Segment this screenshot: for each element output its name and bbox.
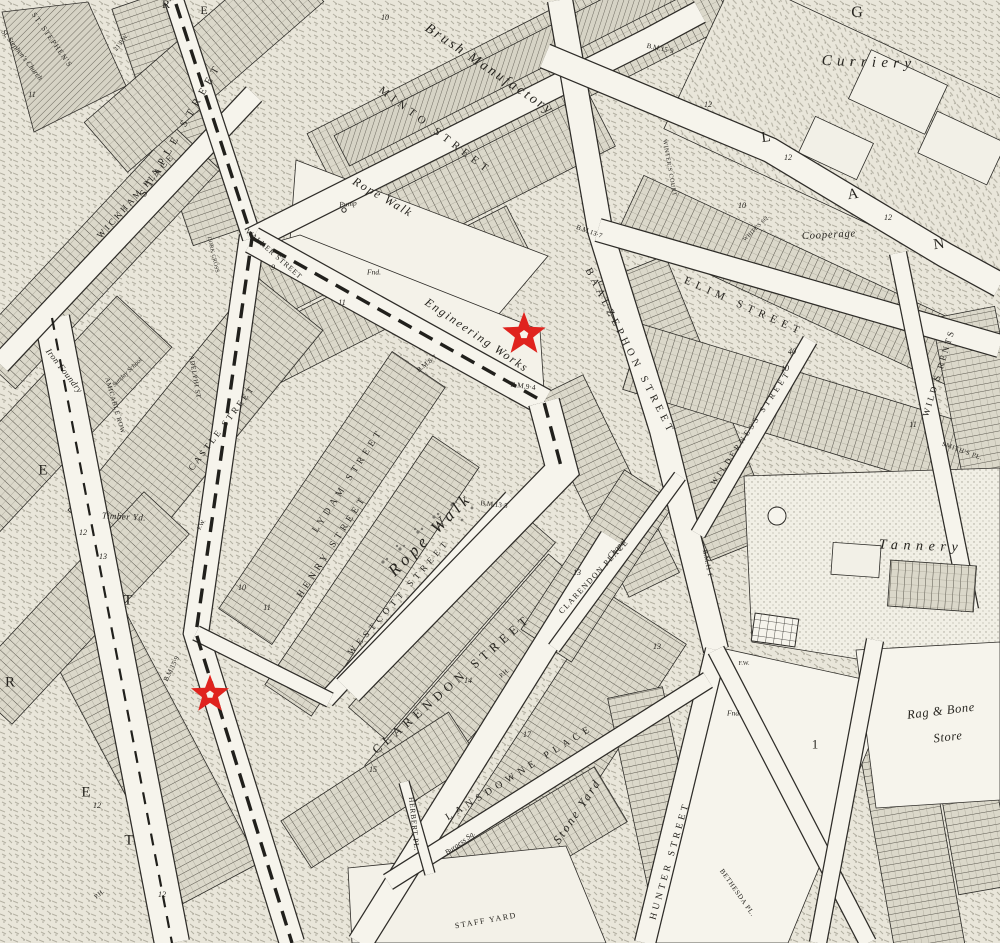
star-marker-2[interactable] xyxy=(188,673,232,722)
pond xyxy=(768,507,786,525)
skylight-building xyxy=(751,613,798,647)
map-canvas[interactable]: MINTO STREETWALKER STREETSTAPLE STREETWI… xyxy=(0,0,1000,943)
map-artwork xyxy=(0,0,1000,943)
star-marker-1[interactable] xyxy=(499,310,549,365)
